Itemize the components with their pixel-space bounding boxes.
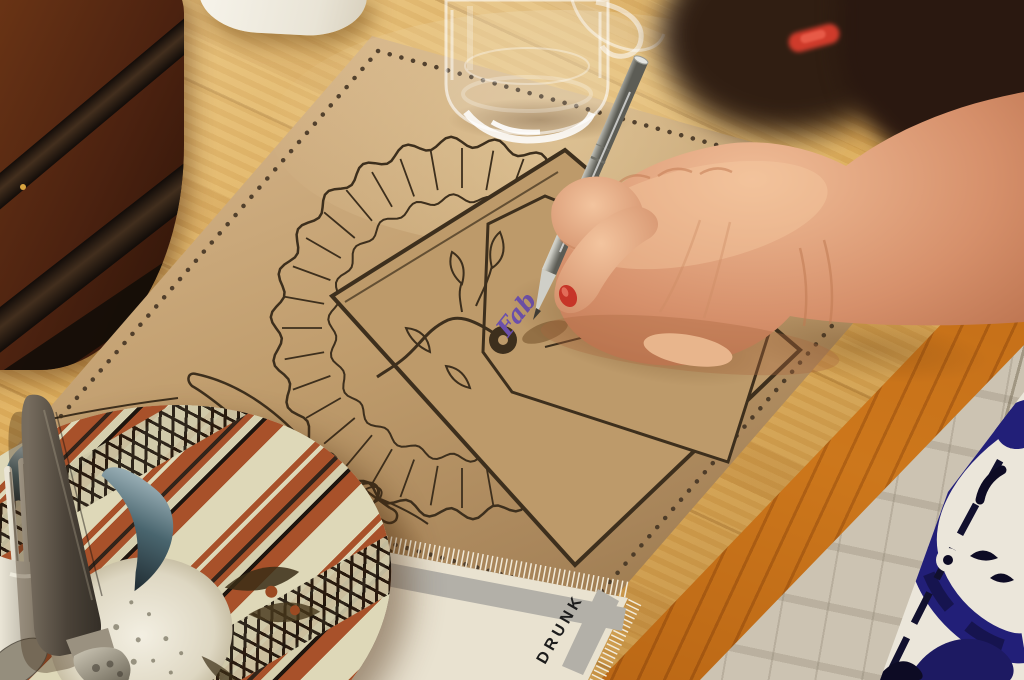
pen-nib xyxy=(533,308,541,320)
writing-hand xyxy=(0,0,1024,680)
photo-scene: yummy tem mas? cadê a bebida? Fab DRUNK xyxy=(0,0,1024,680)
